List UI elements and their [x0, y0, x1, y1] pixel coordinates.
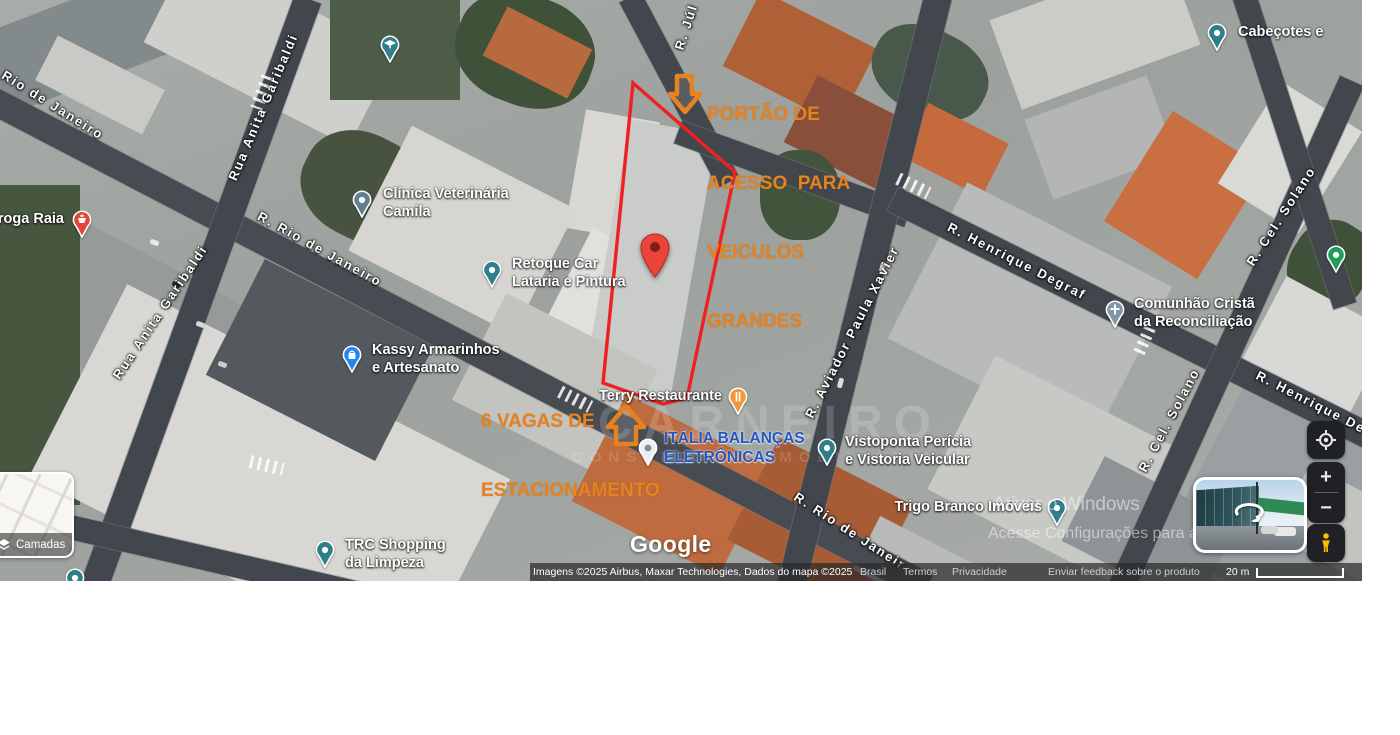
zoom-control: + − [1307, 462, 1345, 523]
place-label[interactable]: ITÁLIA BALANÇASELETRÔNICAS [664, 429, 805, 467]
my-location-button[interactable] [1307, 421, 1345, 459]
layers-label: Camadas [16, 539, 65, 551]
clinic-pin[interactable] [351, 190, 373, 223]
region-label: Brasil [860, 563, 886, 581]
layers-button[interactable]: Camadas [0, 472, 74, 558]
restaurant-pin[interactable] [727, 387, 749, 420]
attribution-bar: Imagens ©2025 Airbus, Maxar Technologies… [530, 563, 1362, 581]
terms-link[interactable]: Termos [903, 563, 937, 581]
pegman-button[interactable] [1307, 524, 1345, 562]
generic-pin[interactable] [816, 438, 838, 471]
gate-annotation: PORTÃO DE ACESSO PARA VEICULOS GRANDES [707, 57, 850, 379]
place-label[interactable]: Retoque CarLataria e Pintura [512, 256, 626, 291]
privacy-link[interactable]: Privacidade [952, 563, 1007, 581]
street-view-preview[interactable] [1193, 477, 1307, 553]
imagery-attribution: Imagens ©2025 Airbus, Maxar Technologies… [533, 563, 852, 581]
pharmacy-pin[interactable] [71, 210, 93, 243]
generic-pin[interactable] [314, 540, 336, 573]
scale-label: 20 m [1226, 563, 1249, 581]
sv-car [1261, 526, 1278, 534]
feedback-link[interactable]: Enviar feedback sobre o produto [1048, 563, 1200, 581]
zoom-out-button[interactable]: − [1307, 495, 1345, 521]
google-logo[interactable]: Google [630, 531, 712, 558]
zoom-in-button[interactable]: + [1307, 464, 1345, 490]
layers-icon [0, 538, 11, 552]
place-label[interactable]: Cabeçotes e [1238, 24, 1323, 42]
map-canvas[interactable]: CARNEIRO CONSULTORIA IMOBILIÁRIA Rio de … [0, 0, 1362, 581]
zoom-divider [1314, 492, 1338, 493]
windows-watermark-title: Ativar o Windows [993, 494, 1140, 516]
place-label[interactable]: Comunhão Cristãda Reconciliação [1134, 296, 1255, 331]
place-label[interactable]: roga Raia [0, 211, 64, 229]
place-label[interactable]: Vistoponta Períciae Vistoria Veicular [845, 434, 971, 469]
parking-annotation: 6 VAGAS DE ESTACIONAMENTO [481, 364, 660, 548]
school-pin[interactable] [379, 35, 401, 68]
church-pin[interactable] [1104, 300, 1126, 333]
red-marker-pin[interactable] [638, 232, 672, 283]
place-label[interactable]: Clínica VeterináriaCamila [383, 186, 509, 221]
generic-pin[interactable] [64, 568, 86, 581]
generic-pin[interactable] [481, 260, 503, 293]
park-pin[interactable] [1325, 245, 1347, 278]
pegman-icon [1316, 532, 1336, 554]
street-label: R. Júl [672, 2, 701, 52]
scale-bar [1256, 568, 1344, 578]
generic-pin[interactable] [1206, 23, 1228, 56]
place-label[interactable]: TRC Shoppingda Limpeza [345, 537, 446, 572]
rotate-view-icon [1231, 502, 1269, 522]
my-location-icon [1315, 429, 1337, 451]
shopping-pin[interactable] [341, 345, 363, 378]
